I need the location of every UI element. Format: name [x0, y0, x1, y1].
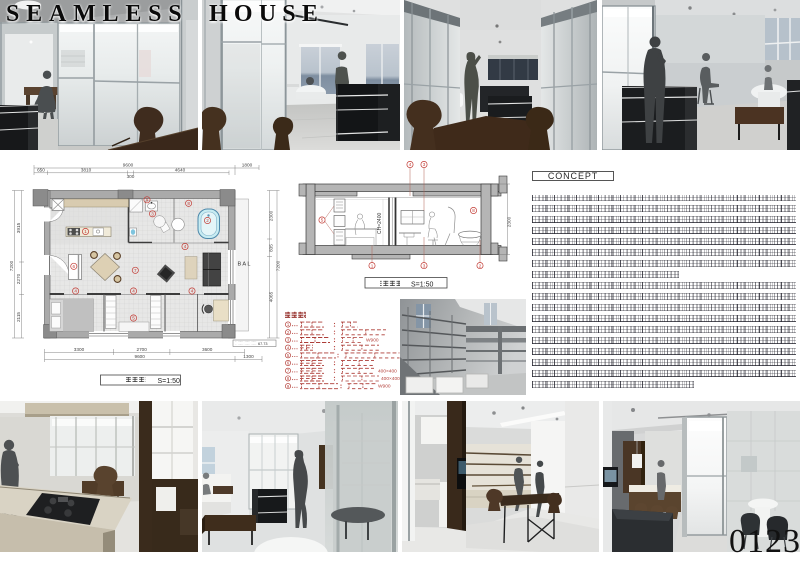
svg-text:3915: 3915 [16, 222, 21, 233]
svg-text:3: 3 [423, 263, 426, 268]
svg-text:7: 7 [134, 268, 137, 273]
svg-text:2: 2 [479, 263, 482, 268]
svg-text:8: 8 [472, 208, 475, 213]
svg-text:1300: 1300 [243, 354, 254, 359]
svg-text:CH=2400: CH=2400 [377, 213, 383, 234]
svg-text:9600: 9600 [134, 354, 145, 359]
svg-text:400×400: 400×400 [378, 368, 397, 374]
svg-text:9600: 9600 [123, 163, 134, 168]
svg-text:835: 835 [269, 244, 274, 252]
svg-text:3: 3 [151, 212, 154, 217]
svg-text:650: 650 [37, 168, 45, 173]
svg-text:1: 1 [371, 263, 374, 268]
svg-text:3: 3 [423, 162, 426, 167]
svg-text:3300: 3300 [74, 347, 85, 352]
svg-text:400×400: 400×400 [381, 376, 400, 382]
svg-text:W900: W900 [366, 338, 379, 344]
svg-text:9: 9 [146, 198, 149, 203]
svg-text:4: 4 [191, 289, 194, 294]
svg-text:2300: 2300 [269, 210, 274, 221]
svg-text:3810: 3810 [81, 168, 92, 173]
svg-text:1: 1 [84, 229, 87, 234]
svg-text:1800: 1800 [242, 163, 253, 168]
svg-text:S=1:50: S=1:50 [158, 378, 180, 385]
svg-text:300: 300 [127, 174, 135, 179]
svg-text:4: 4 [184, 244, 187, 249]
svg-text:67.73: 67.73 [258, 342, 268, 346]
svg-text:4: 4 [132, 289, 135, 294]
svg-text:2300: 2300 [507, 216, 512, 227]
svg-text:BAL: BAL [238, 262, 252, 268]
svg-text:8: 8 [187, 201, 190, 206]
svg-text:6: 6 [73, 264, 76, 269]
svg-text:2700: 2700 [136, 347, 147, 352]
svg-text:S=1:50: S=1:50 [411, 281, 433, 288]
svg-text:3600: 3600 [202, 347, 213, 352]
svg-text:5: 5 [321, 218, 324, 223]
svg-text:2: 2 [206, 218, 209, 223]
svg-text:4: 4 [74, 289, 77, 294]
svg-text:7200: 7200 [276, 260, 281, 271]
svg-text:7200: 7200 [9, 260, 14, 271]
svg-text:5: 5 [132, 316, 135, 321]
svg-text:4065: 4065 [269, 291, 274, 302]
svg-text:2270: 2270 [16, 273, 21, 284]
svg-text:4640: 4640 [175, 168, 186, 173]
svg-text:4: 4 [409, 162, 412, 167]
svg-text:W900: W900 [378, 384, 391, 390]
svg-text:2115: 2115 [16, 312, 21, 322]
